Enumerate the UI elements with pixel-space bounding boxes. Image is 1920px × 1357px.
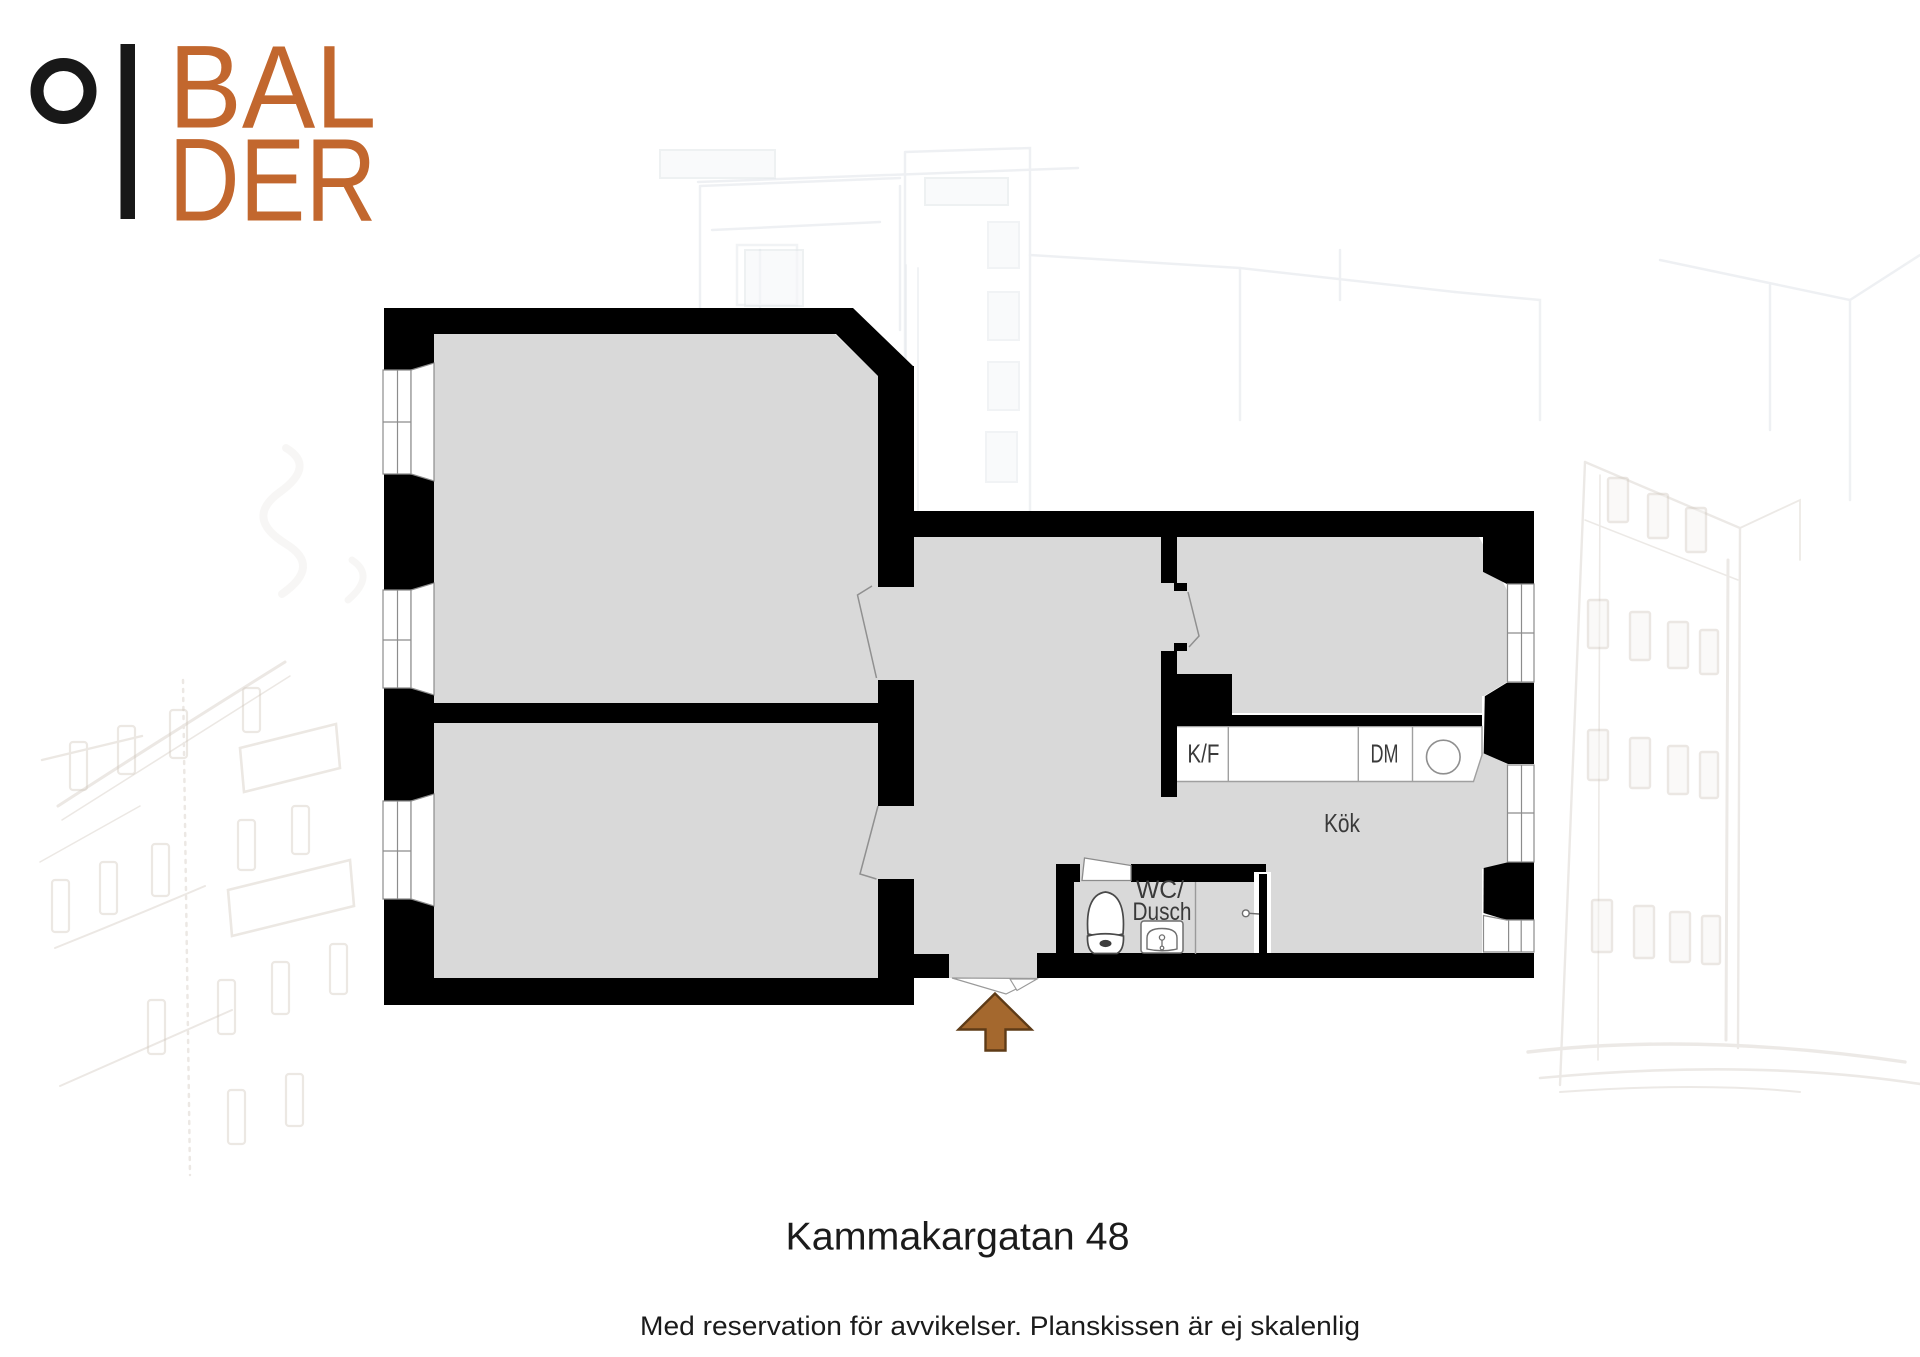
svg-text:Dusch: Dusch bbox=[1133, 898, 1192, 926]
svg-text:DM: DM bbox=[1371, 739, 1399, 769]
svg-text:DER: DER bbox=[169, 115, 377, 247]
svg-text:Kammakargatan 48: Kammakargatan 48 bbox=[786, 1216, 1130, 1259]
svg-text:Kök: Kök bbox=[1324, 808, 1361, 838]
svg-text:K/F: K/F bbox=[1187, 739, 1219, 769]
svg-text:Med reservation för avvikelser: Med reservation för avvikelser. Planskis… bbox=[640, 1311, 1360, 1341]
